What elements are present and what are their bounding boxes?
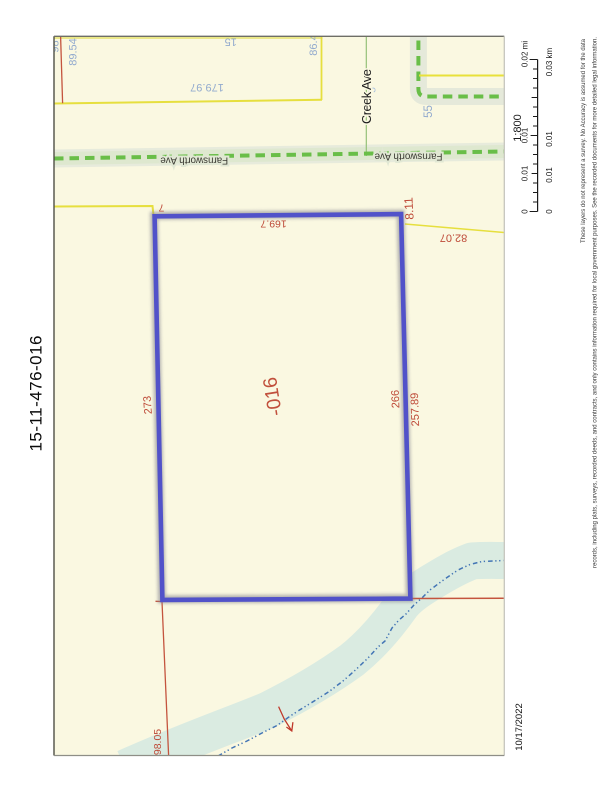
svg-text:86.4: 86.4	[308, 34, 320, 55]
svg-text:89.54: 89.54	[68, 38, 80, 66]
svg-text:98.05: 98.05	[152, 729, 164, 755]
svg-text:8.11: 8.11	[401, 197, 416, 220]
svg-text:15-11-476-016: 15-11-476-016	[27, 336, 46, 452]
svg-text:0.01: 0.01	[521, 165, 530, 181]
svg-text:0.02 mi: 0.02 mi	[521, 41, 530, 67]
svg-text:82.07: 82.07	[440, 232, 468, 244]
svg-text:179.97: 179.97	[190, 81, 224, 93]
svg-text:0: 0	[521, 209, 530, 214]
svg-text:10/17/2022: 10/17/2022	[514, 703, 525, 751]
svg-text:1:800: 1:800	[512, 114, 524, 142]
svg-text:266: 266	[390, 390, 403, 409]
svg-text:Creek Ave: Creek Ave	[359, 69, 374, 124]
svg-text:These layers do not represent: These layers do not represent a survey. …	[581, 38, 587, 243]
svg-text:0.03 km: 0.03 km	[545, 47, 554, 76]
svg-text:Farnsworth Ave: Farnsworth Ave	[160, 155, 228, 166]
svg-text:Farnsworth Ave: Farnsworth Ave	[374, 151, 442, 162]
svg-text:169.7: 169.7	[260, 218, 286, 230]
svg-text:7: 7	[158, 202, 164, 214]
svg-text:0.01: 0.01	[545, 131, 554, 147]
svg-text:15: 15	[225, 36, 237, 48]
svg-text:273: 273	[142, 395, 155, 414]
svg-text:0: 0	[545, 209, 554, 214]
svg-text:0.01: 0.01	[545, 167, 554, 183]
svg-text:257.89: 257.89	[409, 392, 422, 426]
svg-text:55: 55	[423, 105, 435, 118]
svg-text:records, including plats, surv: records, including plats, surveys, recor…	[593, 37, 599, 568]
